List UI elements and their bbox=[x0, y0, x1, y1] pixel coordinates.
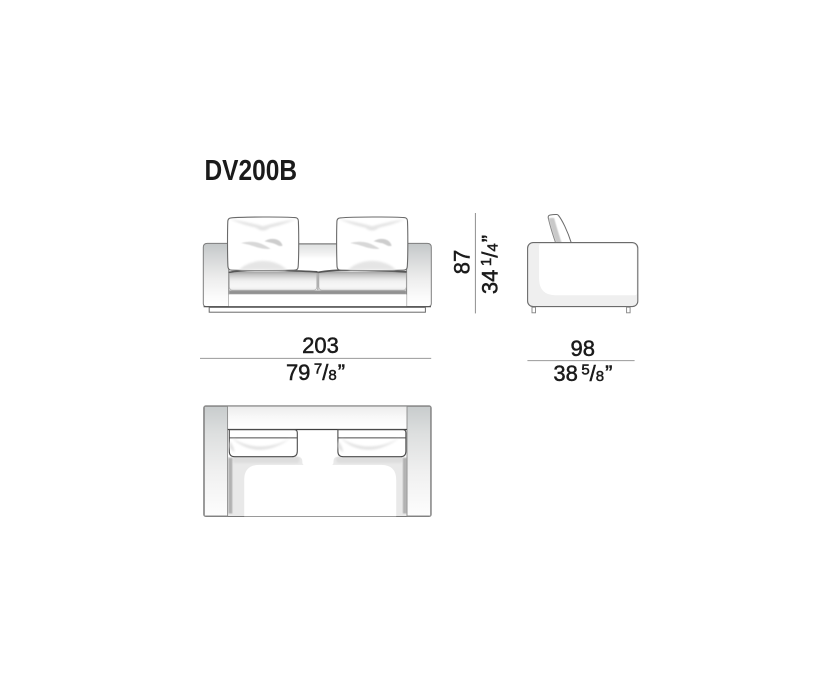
svg-text:385/8”: 385/8” bbox=[553, 361, 612, 386]
svg-text:98: 98 bbox=[570, 336, 594, 361]
svg-text:341/4”: 341/4” bbox=[477, 235, 502, 294]
svg-text:DV200B: DV200B bbox=[205, 155, 298, 187]
svg-text:203: 203 bbox=[302, 333, 339, 358]
svg-text:797/8”: 797/8” bbox=[286, 360, 345, 385]
svg-text:87: 87 bbox=[449, 250, 474, 274]
